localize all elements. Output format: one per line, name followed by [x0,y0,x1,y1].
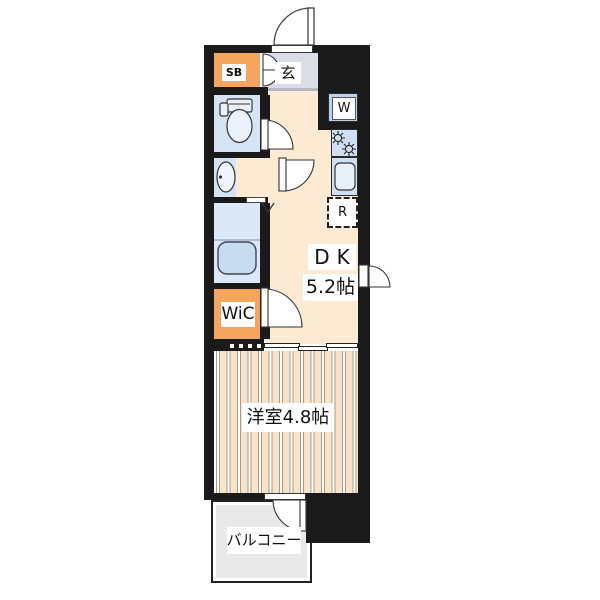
shoebox-label: SB [226,67,242,78]
toilet-floor [214,95,260,158]
dk-size: 5.2帖 [306,278,355,297]
bathroom-floor [214,203,260,289]
bath-doorway-sill [246,197,266,203]
wall-under-bathroom [204,283,260,289]
sliding-door-panel-3[interactable] [326,343,358,348]
dk-name: DK [314,247,357,267]
wall-wic-right [260,289,270,339]
sliding-door-panel-1[interactable] [264,343,300,348]
wall-bottom [204,493,264,500]
western-room-label: 洋室4.8帖 [247,409,330,427]
entrance-label: 玄 [280,66,295,81]
balcony-doorway-sill [264,493,306,500]
wall-bottom-right-block [306,493,370,543]
sliding-door-panel-2[interactable] [298,346,328,351]
refrigerator-space: R [327,197,358,228]
entrance-label-box: 玄 [275,62,301,84]
stove-box [331,129,358,157]
wall-under-shoebox [204,87,268,95]
wic-label: WiC [221,306,254,323]
wall-right [358,92,370,500]
wall-toilet-right [260,95,270,158]
wall-under-toilet [204,152,260,158]
washroom-floor [236,158,268,197]
western-room-label-box: 洋室4.8帖 [242,403,334,432]
kitchen-counter [331,157,358,196]
balcony-label: バルコニー [227,533,302,548]
entrance-doorway-sill [271,45,313,53]
entrance-door-icon[interactable] [274,8,314,45]
washing-machine-label: W [338,101,351,116]
washbasin-unit [214,158,236,197]
dk-size-box: 5.2帖 [303,274,358,301]
dk-name-box: DK [308,244,356,270]
entrance-step-edge [268,88,318,91]
wic-label-box: WiC [221,302,255,327]
balcony-label-box: バルコニー [227,527,301,554]
refrigerator-label: R [338,205,347,220]
wall-top-right-block [318,45,370,92]
closet-rail-marks [230,344,262,348]
wall-bathroom-right [260,203,270,289]
wall-top-left [204,45,271,53]
washing-machine-box: W [328,93,358,122]
shoebox-label-box: SB [222,64,246,81]
floorplan: W R [0,0,600,600]
wall-left [204,45,214,500]
washing-machine-label-box: W [332,97,356,120]
